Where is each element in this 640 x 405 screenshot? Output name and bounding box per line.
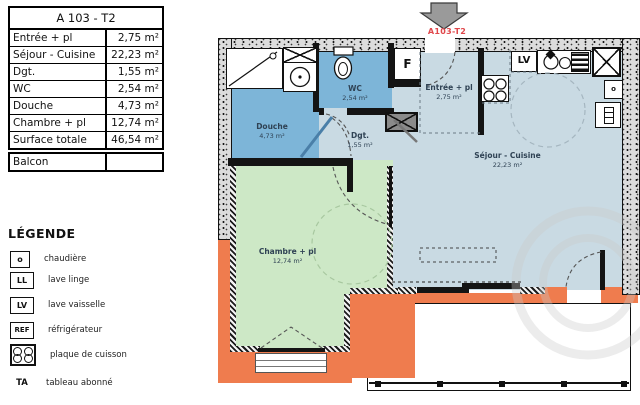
- label-chambre: Chambre + pl12,74 m²: [245, 247, 330, 265]
- sliding-door-panel: [462, 283, 520, 289]
- vent-box-icon: [283, 47, 317, 63]
- railing-post: [561, 381, 567, 387]
- unit-label: A103-T2: [412, 27, 482, 36]
- chambre-window-sill: [255, 353, 327, 373]
- wall-bay-orange: [415, 293, 520, 303]
- floorplan-page: { "unit_table": { "title": "A 103 - T2",…: [0, 0, 640, 405]
- wall-dgt-chambre-stub: [347, 158, 353, 192]
- railing-post: [621, 381, 627, 387]
- shower-tray: [226, 48, 283, 89]
- wall-chambre-left-hatch: [230, 166, 236, 352]
- wall-bay-end-hatch: [398, 287, 416, 294]
- label-douche: Douche4,73 m²: [232, 122, 312, 140]
- entry-tech-box: F: [394, 48, 421, 80]
- wall-chambre-right-hatch: [387, 166, 393, 292]
- entry-door-opening: [425, 37, 455, 53]
- wall-right: [622, 38, 640, 295]
- boiler: o: [604, 80, 623, 99]
- wall-chambre-bottom-hatch: [323, 346, 350, 352]
- label-entree: Entrée + pl2,75 m²: [414, 83, 484, 101]
- railing-post: [499, 381, 505, 387]
- railing-post: [437, 381, 443, 387]
- label-sejour: Séjour - Cuisine22,23 m²: [455, 151, 560, 169]
- room-chambre: [230, 160, 393, 294]
- wall-bay-end-hatch: [520, 287, 545, 294]
- shaft-x-icon: [592, 47, 621, 77]
- duct-shaft-icon: [385, 112, 418, 132]
- room-wc: [319, 43, 394, 113]
- meter-board: [595, 102, 621, 128]
- balcony-door-leaf: [600, 250, 605, 290]
- label-dgt: Dgt.1,55 m²: [335, 131, 385, 149]
- washing-machine: [283, 62, 317, 92]
- railing-post: [375, 381, 381, 387]
- wall-chambre-bottom-hatch: [230, 346, 260, 352]
- drainer-icon: [571, 52, 589, 72]
- entry-arrow-icon: [421, 3, 467, 29]
- meter-icon: [604, 107, 614, 124]
- cooktop: [481, 75, 509, 102]
- wall-chambre-lower-right-hatch: [344, 294, 350, 352]
- wall-chambre-top: [228, 158, 352, 166]
- dishwasher: LV: [511, 51, 537, 72]
- chambre-window: [258, 348, 325, 352]
- floor-plan: F LV o: [0, 0, 640, 405]
- label-wc: WC2,54 m²: [330, 84, 380, 102]
- wall-wc-bottom-stub: [319, 108, 324, 115]
- room-chambre-lower: [230, 294, 350, 352]
- wall-corner-orange: [350, 292, 415, 378]
